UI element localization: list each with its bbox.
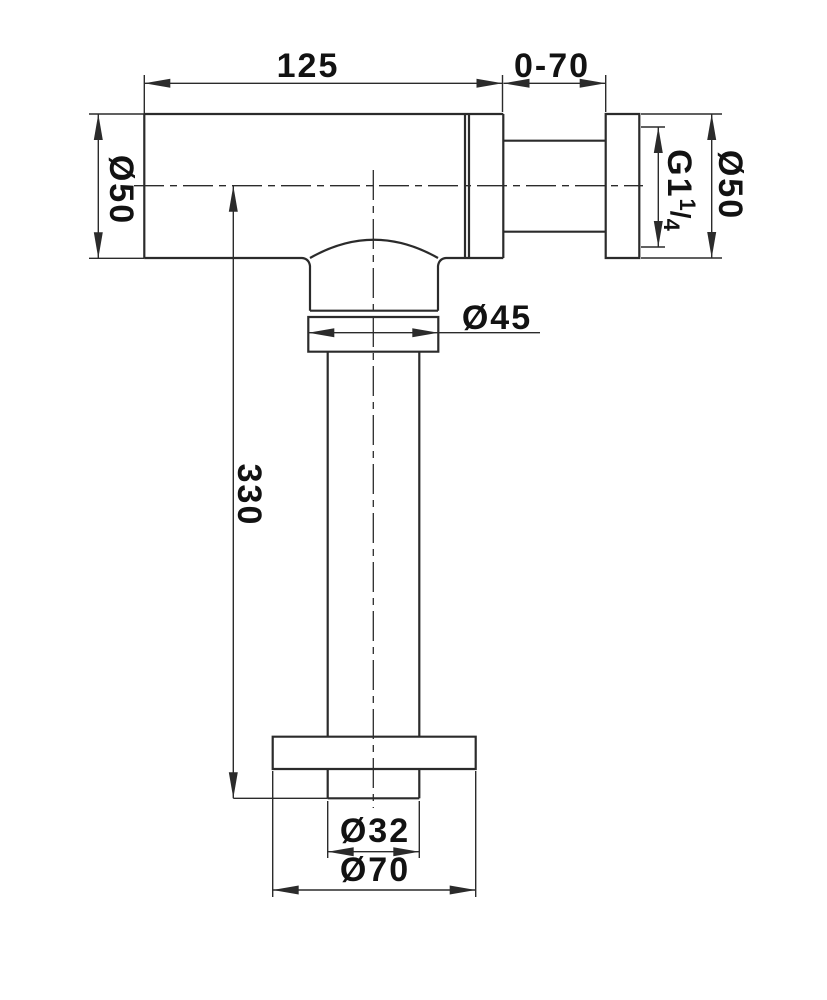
thread-fraction-denominator: 4 — [660, 219, 685, 232]
dim-label-flange-diameter: Ø70 — [340, 851, 410, 889]
arrowhead-top — [229, 186, 238, 212]
trap-dome-arc — [310, 240, 438, 258]
arrowhead-left — [273, 886, 299, 895]
technical-drawing: 125 0-70 Ø50 G11/4 Ø50 — [0, 0, 827, 1000]
dim-label-tailpipe-diameter: Ø32 — [340, 812, 410, 850]
dimension-body-length: 125 — [144, 47, 502, 114]
dim-label-outlet-diameter: Ø50 — [711, 150, 749, 220]
arrowhead-right — [412, 328, 438, 337]
thread-fraction-numerator: 1 — [676, 199, 701, 211]
dim-label-adjust-range: 0-70 — [514, 47, 590, 85]
arrowhead-bottom — [707, 232, 716, 258]
body-bottom-left-edge — [144, 258, 310, 311]
arrowhead-top — [94, 114, 103, 140]
dimension-thread: G11/4 — [641, 127, 701, 247]
arrowhead-left — [144, 79, 170, 88]
centerlines — [134, 170, 643, 808]
dimension-inlet-diameter: Ø50 — [89, 114, 144, 258]
arrowhead-bottom — [94, 232, 103, 258]
floor-flange — [273, 737, 476, 769]
dim-label-cup-nut-diameter: Ø45 — [462, 299, 532, 337]
thread-size: G1 — [660, 149, 698, 198]
arrowhead-left — [308, 328, 334, 337]
dim-label-inlet-diameter: Ø50 — [102, 155, 140, 225]
arrowhead-bottom — [229, 772, 238, 798]
arrowhead-right — [477, 79, 503, 88]
dim-label-body-length: 125 — [277, 47, 340, 85]
drawing-canvas: 125 0-70 Ø50 G11/4 Ø50 — [0, 0, 827, 1000]
dimension-adjust-range: 0-70 — [504, 47, 606, 112]
dim-label-thread: G11/4 — [660, 149, 701, 231]
dimension-tailpipe-diameter: Ø32 — [328, 801, 420, 858]
arrowhead-top — [707, 114, 716, 140]
dim-label-tailpipe-length: 330 — [230, 464, 268, 527]
dimension-tailpipe-length: 330 — [229, 186, 328, 799]
part-outline — [144, 114, 639, 798]
arrowhead-right — [450, 886, 476, 895]
